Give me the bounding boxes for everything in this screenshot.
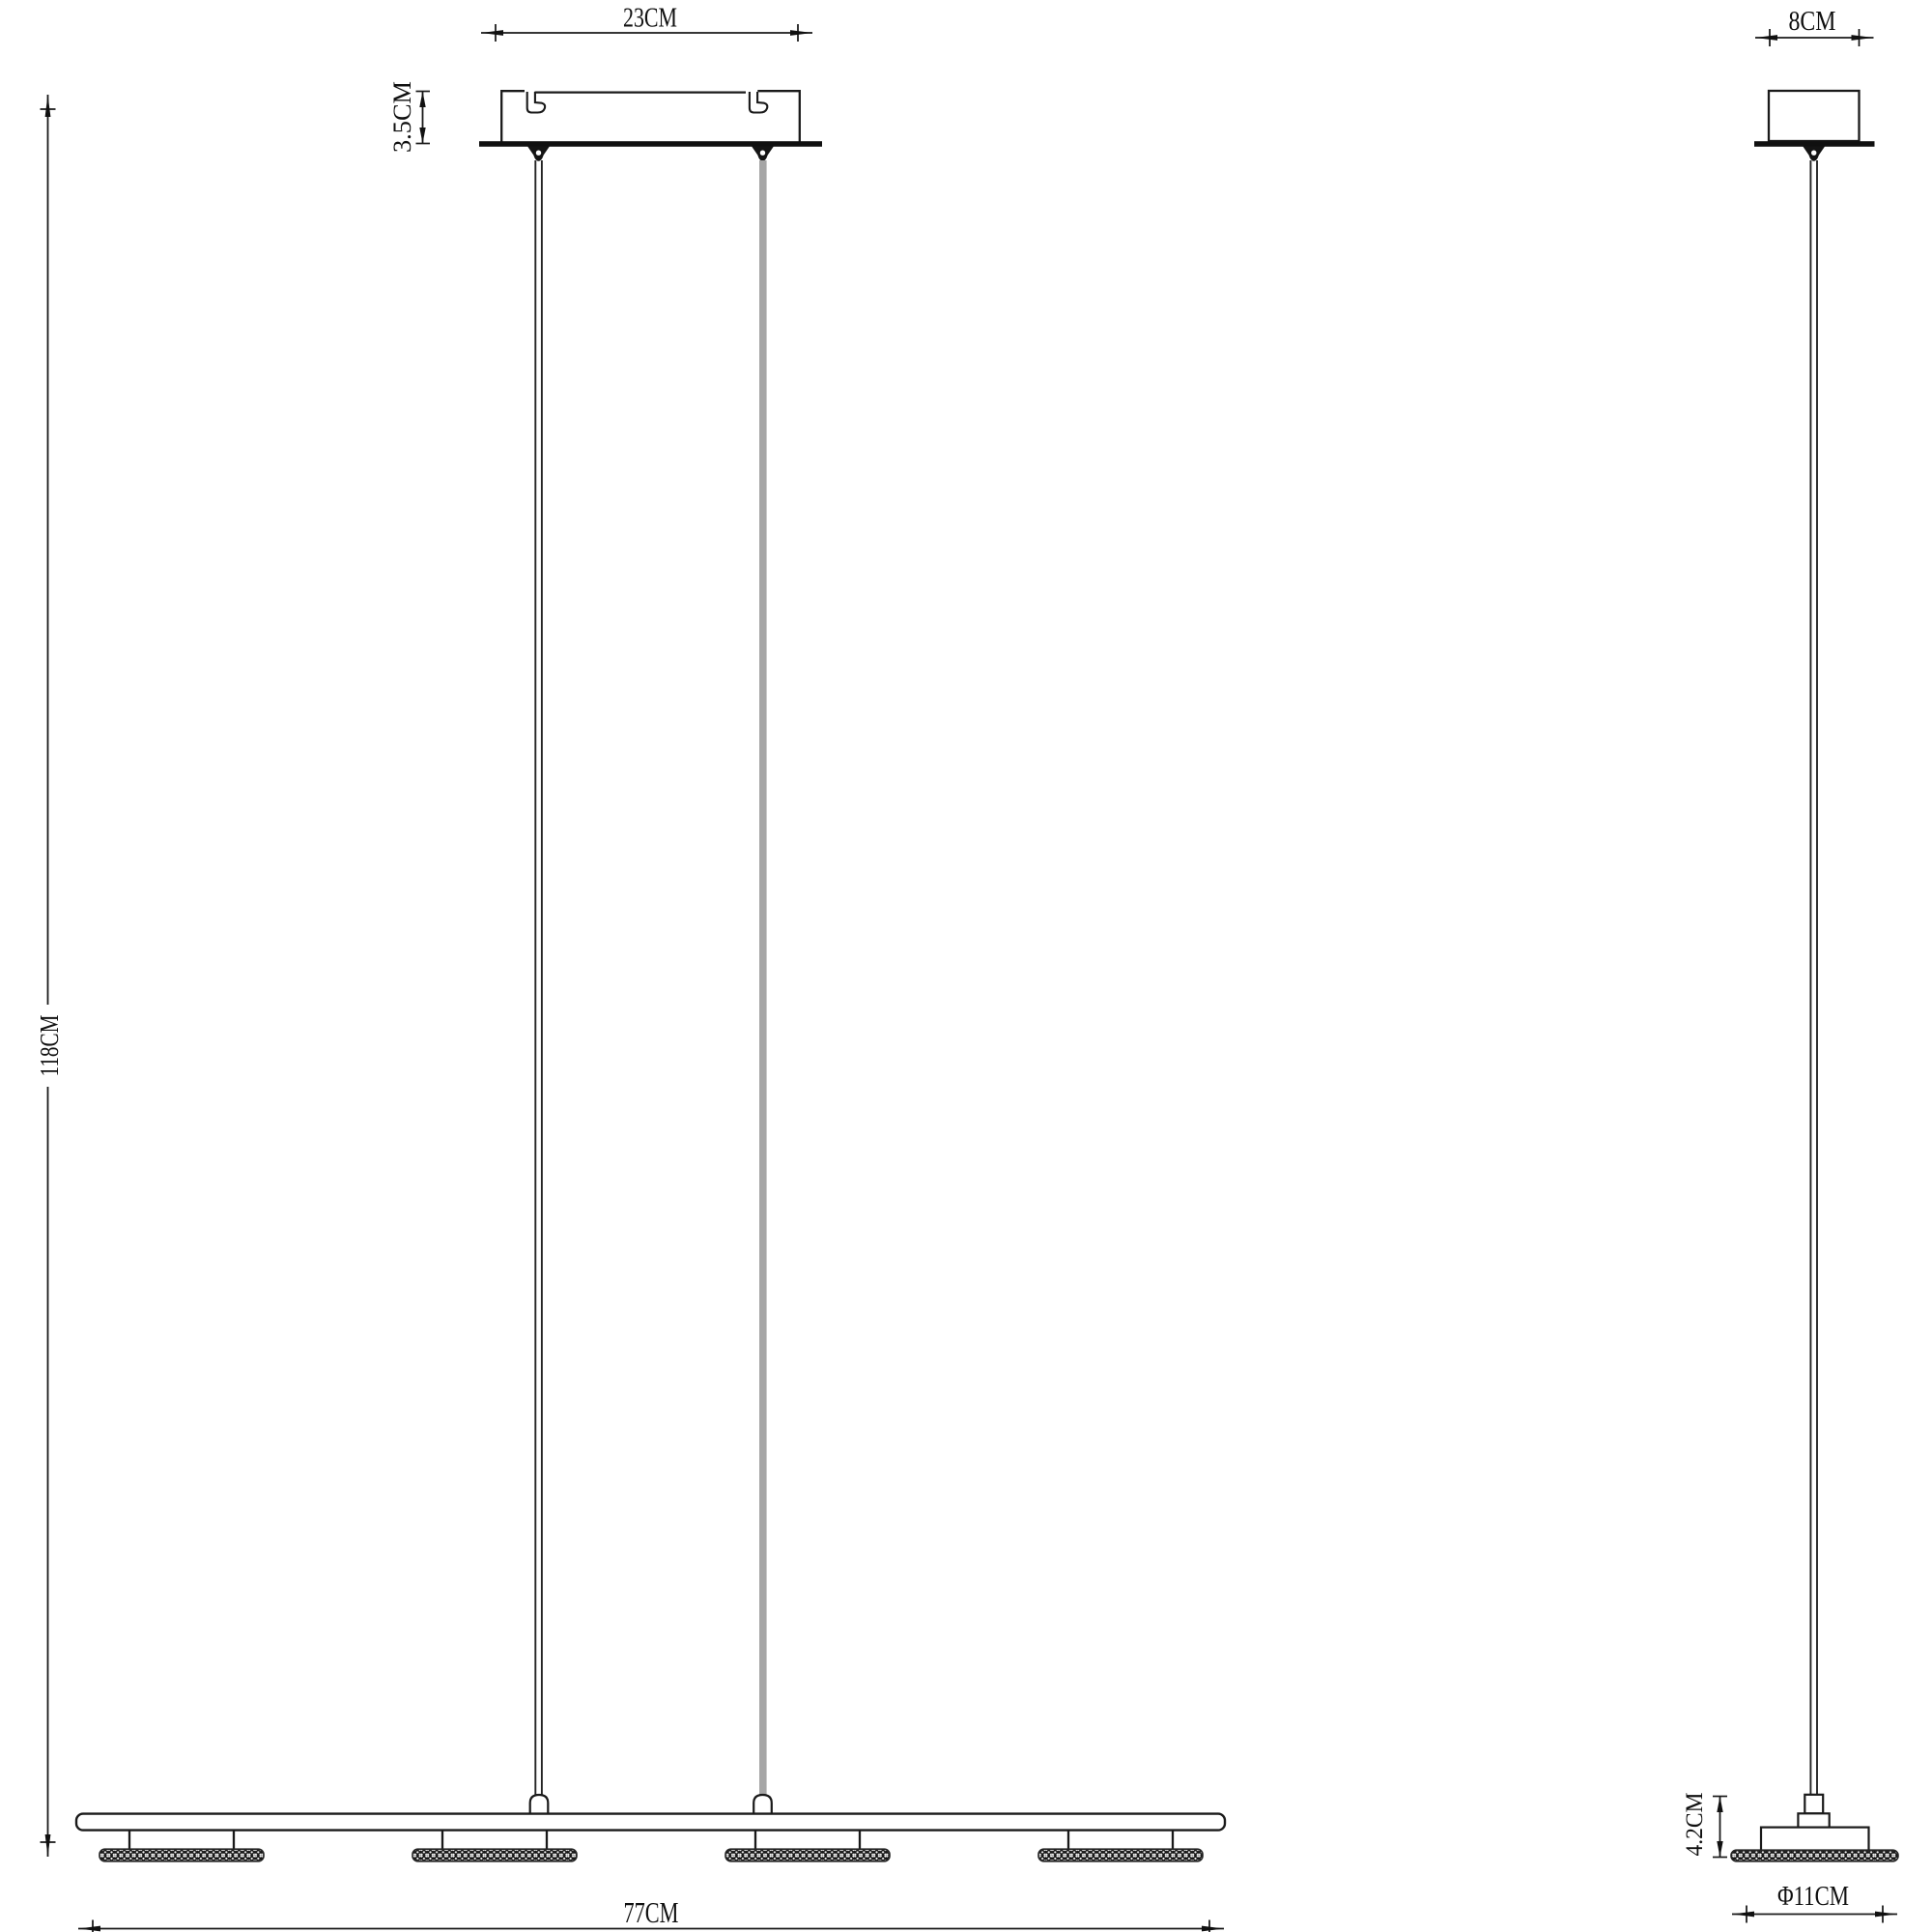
svg-text:77CM: 77CM — [624, 1895, 679, 1929]
svg-text:23CM: 23CM — [623, 4, 677, 34]
svg-text:118CM: 118CM — [35, 1015, 64, 1077]
svg-text:3.5CM: 3.5CM — [388, 81, 416, 153]
svg-text:Φ11CM: Φ11CM — [1777, 1882, 1849, 1912]
svg-text:8CM: 8CM — [1789, 7, 1836, 37]
svg-text:4.2CM: 4.2CM — [1682, 1793, 1708, 1857]
